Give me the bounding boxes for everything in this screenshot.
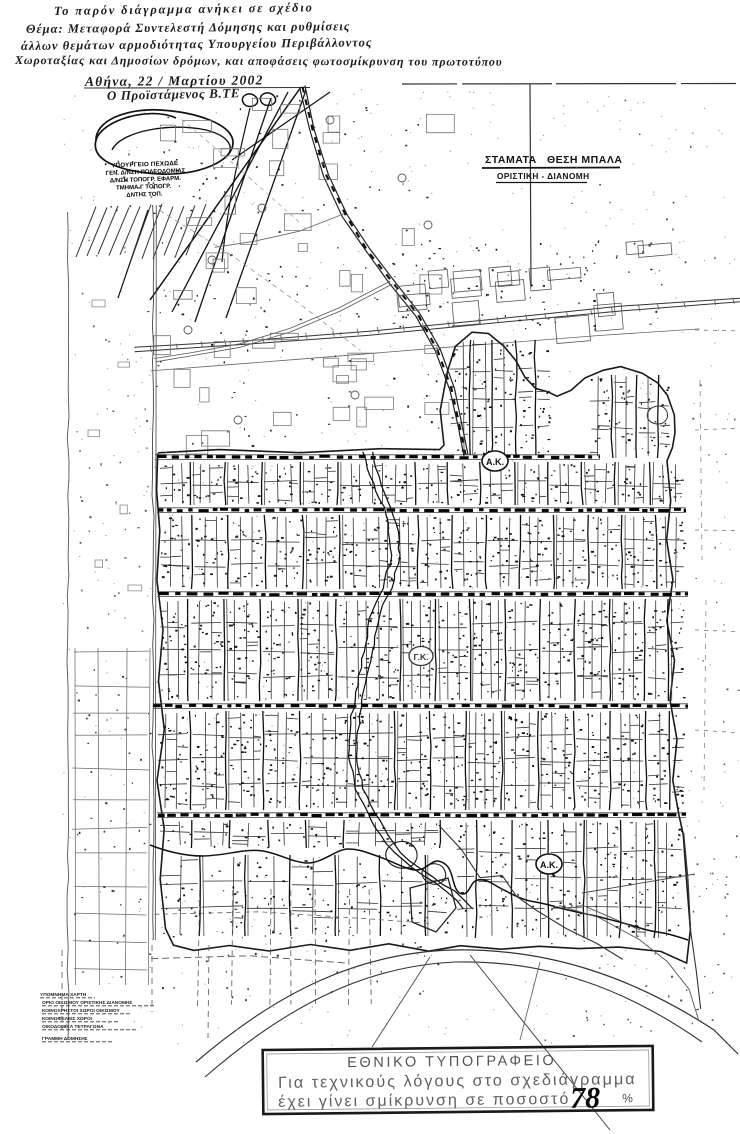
svg-text:Α.Κ.: Α.Κ. — [540, 860, 558, 870]
svg-text:78: 78 — [570, 1081, 600, 1114]
svg-text:ΔΝΤΗΣ ΤΟΠ.: ΔΝΤΗΣ ΤΟΠ. — [126, 192, 163, 199]
svg-text:ΟΡΙΟ ΟΙΚΙΣΜΟΥ ΟΡΙΣΤΙΚΗΣ ΔΙΑΝΟΜ: ΟΡΙΟ ΟΙΚΙΣΜΟΥ ΟΡΙΣΤΙΚΗΣ ΔΙΑΝΟΜΗΣ — [42, 1000, 132, 1006]
svg-text:ΟΙΚΟΔΟΜΙΚΑ ΤΕΤΡΑΓΩΝΑ: ΟΙΚΟΔΟΜΙΚΑ ΤΕΤΡΑΓΩΝΑ — [42, 1024, 104, 1030]
svg-text:%: % — [622, 1091, 633, 1105]
svg-text:ΚΟΙΝΩΦΕΛΕΙΣ ΧΩΡΟΙ: ΚΟΙΝΩΦΕΛΕΙΣ ΧΩΡΟΙ — [42, 1016, 93, 1022]
svg-text:έχει γίνει σμίκρυνση σε ποσοστ: έχει γίνει σμίκρυνση σε ποσοστό — [278, 1091, 570, 1111]
svg-text:Α.Κ.: Α.Κ. — [486, 457, 504, 467]
svg-text:ΕΘΝΙΚΟ ΤΥΠΟΓΡΑΦΕΙΟ: ΕΘΝΙΚΟ ΤΥΠΟΓΡΑΦΕΙΟ — [347, 1053, 556, 1071]
svg-text:ΟΡΙΣΤΙΚΗ - ΔΙΑΝΟΜΗ: ΟΡΙΣΤΙΚΗ - ΔΙΑΝΟΜΗ — [497, 171, 590, 181]
svg-text:ΓΡΑΜΜΗ ΔΟΜΗΣΗΣ: ΓΡΑΜΜΗ ΔΟΜΗΣΗΣ — [42, 1036, 88, 1042]
svg-text:ΥΠΟΜΝΗΜΑ ΧΑΡΤΗ: ΥΠΟΜΝΗΜΑ ΧΑΡΤΗ — [40, 992, 87, 998]
svg-text:Θέμα: Μεταφορά Συντελεστή Δόμη: Θέμα: Μεταφορά Συντελεστή Δόμησης και ρυ… — [26, 19, 351, 36]
svg-text:Γ.Κ.: Γ.Κ. — [413, 652, 428, 662]
svg-text:Χωροταξίας και Δημοσίων δρόμων: Χωροταξίας και Δημοσίων δρόμων, και αποφ… — [14, 53, 503, 69]
svg-text:ΣΤΑΜΑΤΑ ΘΕΣΗ ΜΠΑΛΑ: ΣΤΑΜΑΤΑ ΘΕΣΗ ΜΠΑΛΑ — [485, 154, 622, 166]
svg-text:ΚΟΙΝΟΧΡΗΣΤΟΙ ΧΩΡΟΙ ΟΙΚΙΣΜΟΥ: ΚΟΙΝΟΧΡΗΣΤΟΙ ΧΩΡΟΙ ΟΙΚΙΣΜΟΥ — [42, 1008, 120, 1014]
